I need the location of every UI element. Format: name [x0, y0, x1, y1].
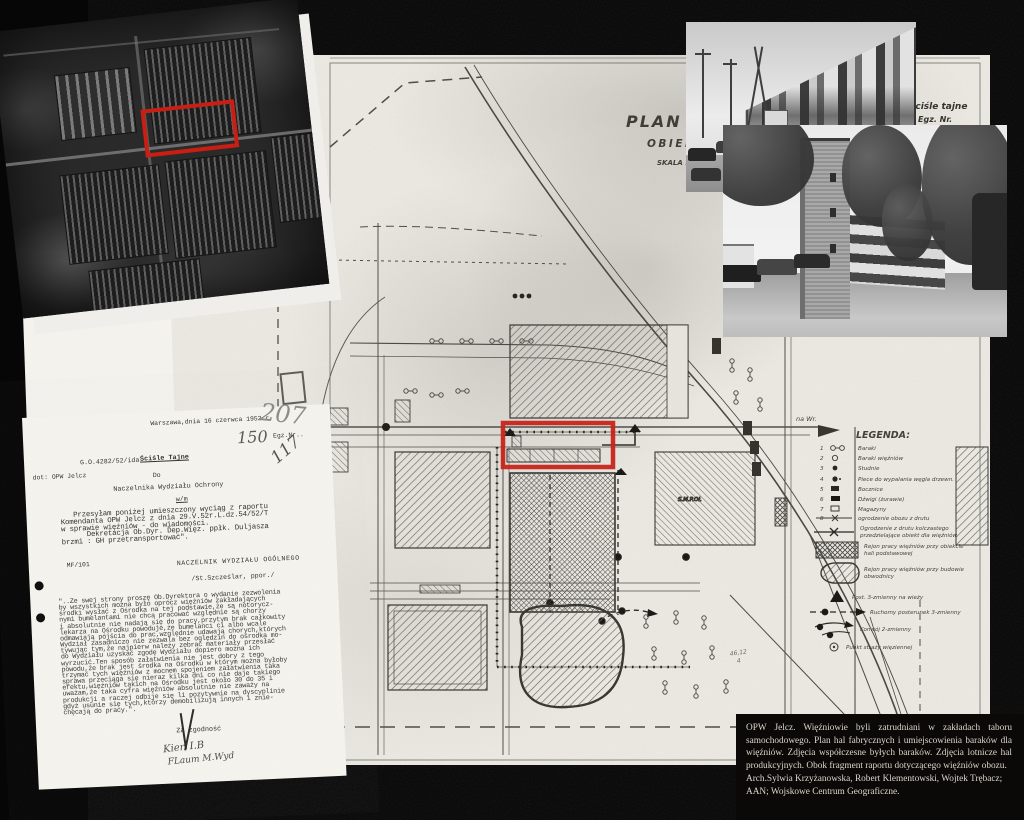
- legend-item-label: Bocznice: [858, 487, 883, 493]
- svg-text:4: 4: [820, 477, 824, 483]
- photo-street-tower: [723, 125, 1007, 337]
- legend-fence-symbol: [814, 528, 854, 536]
- letter-initials: MF/101: [67, 561, 90, 569]
- legend-area1-symbol: [816, 542, 858, 558]
- aerial-hall: [164, 150, 276, 259]
- car: [723, 265, 761, 282]
- svg-text:4: 4: [736, 657, 741, 664]
- letter-signer: /St.Szcześlar, ppor./: [191, 572, 274, 583]
- svg-text:3: 3: [820, 466, 824, 472]
- letter-quote-excerpt: "..Ze swej strony proszę Ob.Dyrektora o …: [58, 589, 289, 716]
- prisoner-barracks: [504, 424, 641, 462]
- aerial-hall: [59, 164, 169, 265]
- punch-hole: [36, 613, 45, 622]
- letter-body: Przesyłam poniżej umieszczony wyciąg z r…: [60, 501, 329, 547]
- legend-area2-symbol: [821, 563, 859, 583]
- legend-mobile-label: Ruchomy posterunek 3-zmienny: [870, 610, 961, 616]
- legend-item-label: Baraki więźniów: [858, 455, 904, 462]
- svg-text:ściśle tajne: ściśle tajne: [910, 101, 967, 112]
- svg-text:przedzielające obiekt dla więź: przedzielające obiekt dla więźniów: [859, 532, 957, 539]
- svg-text:na Wr.: na Wr.: [796, 415, 817, 423]
- letter-signer-title: NACZELNIK WYDZIAŁU OGÓLNEGO: [177, 555, 300, 568]
- legend-convoy-label: Konwój 2-zmienny: [860, 626, 912, 633]
- svg-text:obwodnicy: obwodnicy: [864, 574, 895, 580]
- handwritten-number: 207: [259, 398, 307, 430]
- letter-recipient: Naczelnika Wydziału Ochrony: [113, 481, 223, 494]
- svg-text:1: 1: [820, 446, 824, 452]
- tower-window: [830, 244, 836, 253]
- secrecy-stamp: ściśle tajne Egz. Nr.: [910, 101, 967, 124]
- svg-text:7: 7: [820, 507, 824, 513]
- page-collage: na Wr.: [0, 0, 1024, 820]
- tower-window: [830, 173, 836, 182]
- svg-text:46,12: 46,12: [729, 648, 747, 657]
- power-pole: [702, 49, 704, 137]
- legend-item-label: Dźwigi (żurawie): [858, 496, 904, 503]
- car: [688, 148, 716, 161]
- letter-reference: G.O.4282/52/ida: [80, 457, 140, 467]
- punch-hole: [34, 581, 43, 590]
- car: [691, 168, 721, 181]
- svg-text:6: 6: [820, 497, 824, 503]
- legend-item-label: Magazyny: [858, 507, 887, 513]
- building-label: S.M.P.Oł.: [678, 497, 702, 503]
- survey-note: 46,12 4: [729, 648, 748, 665]
- handwritten-number: 150: [237, 427, 268, 447]
- aerial-red-annotation-box: [140, 99, 239, 157]
- svg-text:8: 8: [820, 516, 824, 522]
- svg-text:2: 2: [820, 456, 824, 462]
- letter-to: Do: [153, 472, 161, 479]
- van: [972, 193, 1007, 291]
- svg-text:hali podstawowej: hali podstawowej: [864, 551, 913, 557]
- aerial-hall: [54, 67, 137, 141]
- legend-item-label: Baraki: [858, 446, 876, 452]
- tower-window: [830, 208, 836, 217]
- route-arrow: na Wr.: [796, 415, 840, 437]
- svg-text:5: 5: [820, 487, 824, 493]
- car: [794, 254, 830, 268]
- letter-subject: dot: OPW Jelcz: [33, 472, 87, 481]
- car: [757, 259, 797, 275]
- letter-secret-stamp: Ściśle Tajne: [140, 453, 189, 463]
- legend-tower-label: Post. 3-zmienny na wieży: [852, 595, 924, 601]
- power-pole-crossarm: [695, 53, 711, 55]
- svg-text:Egz. Nr.: Egz. Nr.: [918, 115, 952, 124]
- aerial-photo: [0, 0, 329, 319]
- plan-legend: LEGENDA: 1 Baraki 2 Baraki więźniów 3 St…: [810, 430, 965, 651]
- power-pole-crossarm: [723, 63, 737, 65]
- letter-date: Warszawa,dnia 16 czerwca 1952 r.: [150, 415, 273, 428]
- legend-fence-label: Ogrodzenie z drutu kolczastego: [860, 526, 949, 532]
- legend-area2-label: Rejon pracy więźniów przy budowie: [864, 566, 965, 573]
- legend-guard-label: Punkt straży więziennej: [846, 645, 913, 651]
- legend-item-label: Studnie: [858, 466, 880, 472]
- caption-credits: Arch.Sylwia Krzyżanowska, Robert Klement…: [746, 773, 1012, 798]
- caption-text: OPW Jelcz. Więźniowie byli zatrudniani w…: [746, 722, 1012, 772]
- typed-report-letter: Warszawa,dnia 16 czerwca 1952 r. Egz.Nr.…: [22, 404, 347, 790]
- legend-item-label: ogrodzenie obozu z drutu: [858, 516, 930, 522]
- letter-wm: w/m: [176, 496, 188, 504]
- caption-block: OPW Jelcz. Więźniowie byli zatrudniani w…: [736, 714, 1024, 820]
- legend-title: LEGENDA:: [856, 430, 910, 441]
- legend-item-label: Piece do wypalania węgla drzewn.: [858, 477, 954, 483]
- legend-area1-label: Rejon pracy więźniów przy obiekcie: [864, 543, 964, 550]
